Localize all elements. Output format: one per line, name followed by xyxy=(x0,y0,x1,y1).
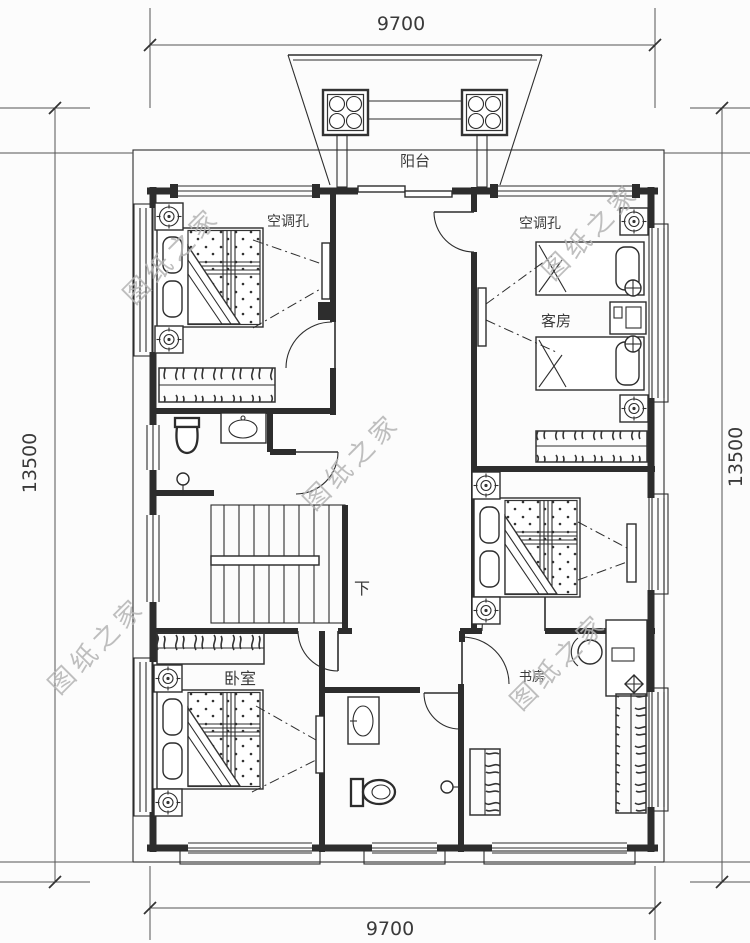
window-bottom-3 xyxy=(484,843,635,864)
closet xyxy=(616,694,646,813)
dimension-top: 9700 xyxy=(144,8,661,108)
stairs-down-label: 下 xyxy=(354,581,370,598)
room-label-balcony: 阳台 xyxy=(400,153,430,170)
double-bed xyxy=(474,498,580,597)
window-top-left xyxy=(170,184,320,198)
floor-plan-canvas: 9700 9700 13500 13500 阳台 xyxy=(0,0,750,943)
nightstand xyxy=(610,302,646,334)
dimension-top-value: 9700 xyxy=(377,13,425,35)
closet xyxy=(157,633,264,664)
nightstand-lamp xyxy=(472,472,500,499)
nightstand-lamp xyxy=(155,326,183,353)
window-bottom-2 xyxy=(364,843,445,864)
watermark-text: 图纸之家 xyxy=(42,591,151,700)
window-right-bay-3 xyxy=(649,688,668,811)
room-label-bedroom: 卧室 xyxy=(224,670,256,688)
column-detail xyxy=(323,90,368,135)
sink xyxy=(348,697,379,744)
dimension-bottom-value: 9700 xyxy=(366,918,414,940)
door-guest-room xyxy=(434,212,474,252)
nightstand-lamp xyxy=(472,597,500,624)
sink xyxy=(221,413,266,443)
dimension-left-value: 13500 xyxy=(19,433,41,493)
ac-hole-mark xyxy=(627,524,636,582)
column-detail xyxy=(462,90,507,135)
floor-plan-page: 9700 9700 13500 13500 阳台 xyxy=(0,0,750,943)
double-bed xyxy=(157,690,263,789)
room-label-ac-hole-left: 空调孔 xyxy=(267,213,309,229)
closet xyxy=(536,431,647,462)
window-right-bay-2 xyxy=(649,494,668,594)
window-left-2 xyxy=(147,425,159,470)
closet xyxy=(470,749,500,815)
stair-handrail xyxy=(211,556,319,565)
furniture: 下 xyxy=(154,203,648,816)
dimension-bottom: 9700 xyxy=(144,866,661,940)
room-label-ac-hole-right: 空调孔 xyxy=(519,215,561,231)
door-study xyxy=(462,637,509,684)
wall-segment xyxy=(270,411,296,452)
room-label-guest-room: 客房 xyxy=(541,313,571,330)
door-bedroom-bottom-left xyxy=(298,631,338,671)
leader-line xyxy=(578,522,627,580)
ac-hole-mark xyxy=(478,288,486,346)
balcony: 阳台 xyxy=(288,55,542,187)
door-bedroom-top-left xyxy=(286,322,335,368)
staircase xyxy=(211,505,345,623)
closet xyxy=(159,368,275,402)
window-left-bay-4 xyxy=(134,658,153,816)
window-left-3 xyxy=(147,515,159,602)
nightstand-lamp xyxy=(620,395,648,422)
toilet xyxy=(175,418,199,453)
ac-hole-mark xyxy=(322,243,330,299)
dimension-left: 13500 xyxy=(0,102,90,888)
nightstand-lamp xyxy=(154,665,182,692)
balcony-sliding-door xyxy=(358,186,452,197)
nightstand-lamp xyxy=(154,789,182,816)
window-bottom-1 xyxy=(180,843,320,864)
toilet xyxy=(351,779,395,806)
watermark-text: 图纸之家 xyxy=(297,407,406,516)
window-right-bay-1 xyxy=(649,224,668,402)
dimension-right-value: 13500 xyxy=(725,427,747,487)
ac-hole-mark xyxy=(316,716,324,773)
door-bathroom-lower xyxy=(424,693,460,729)
dimension-right: 13500 xyxy=(690,102,750,888)
wall-nub xyxy=(318,302,333,320)
